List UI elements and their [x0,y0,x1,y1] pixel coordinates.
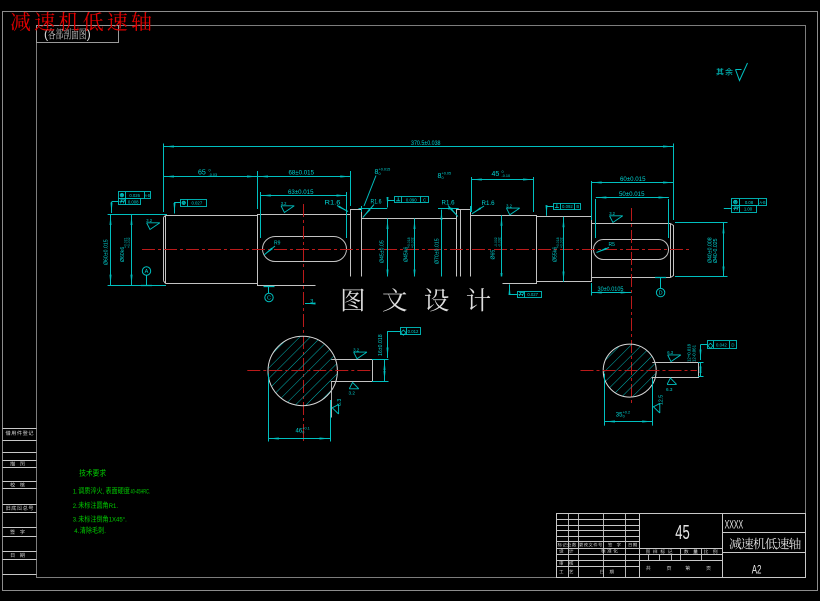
svg-text:C: C [267,296,271,302]
svg-text:370.5±0.038: 370.5±0.038 [411,141,441,147]
svg-text:C: C [423,197,426,202]
svg-text:D: D [659,291,663,297]
svg-text:50±0.015: 50±0.015 [619,191,645,198]
svg-text:0.027: 0.027 [527,292,538,297]
svg-text:A-B: A-B [145,193,150,198]
svg-text:3.2: 3.2 [353,347,359,352]
svg-text:45: 45 [492,171,500,178]
svg-text:0.092: 0.092 [562,204,573,209]
svg-text:16±0.018: 16±0.018 [378,334,384,356]
svg-text:4.: 4. [74,529,79,535]
svg-text:Ø45±0.05: Ø45±0.05 [380,240,386,263]
svg-text:+0.002: +0.002 [559,237,563,248]
svg-text:1X45°.: 1X45°. [109,518,127,524]
svg-text:D: D [731,342,734,347]
svg-text:Ø70±0.015: Ø70±0.015 [434,238,440,264]
svg-text:R1.: R1. [109,504,119,510]
svg-text:Ø60±0.015: Ø60±0.015 [104,239,110,265]
svg-text:68±0.015: 68±0.015 [289,169,315,176]
svg-text:-0.10: -0.10 [502,174,511,178]
svg-text:A: A [145,269,149,275]
svg-text:0: 0 [379,172,381,176]
svg-text:45: 45 [675,522,690,544]
svg-text:40-45HRC.: 40-45HRC. [131,489,151,495]
svg-text:6.3: 6.3 [667,350,673,355]
svg-text:A-B: A-B [760,200,766,205]
svg-text:3.: 3. [73,518,78,524]
svg-text:12.5: 12.5 [659,395,665,405]
svg-text:0: 0 [623,415,625,419]
svg-text:0.008: 0.008 [128,199,139,204]
svg-text:3.2: 3.2 [281,201,287,206]
svg-text:30±0.0105: 30±0.0105 [598,287,625,293]
svg-text:0: 0 [302,431,304,435]
svg-text:0: 0 [442,176,444,180]
svg-text:0.012: 0.012 [408,329,419,334]
svg-text:-0.032: -0.032 [497,237,501,247]
svg-text:3.2: 3.2 [349,391,356,396]
svg-text:12-0.061: 12-0.061 [692,344,697,362]
svg-text:B: B [576,204,579,209]
svg-text:A2: A2 [752,563,762,577]
svg-text:R5: R5 [609,242,616,248]
svg-text:3.2: 3.2 [609,211,615,216]
svg-text:0.027: 0.027 [191,201,202,206]
svg-text:0.026: 0.026 [129,193,140,198]
svg-text:Ø40-0.025: Ø40-0.025 [713,238,719,263]
svg-text:R1.6: R1.6 [325,199,341,206]
svg-text:0.090: 0.090 [406,197,417,202]
svg-text:2.: 2. [73,504,78,510]
svg-text:1.: 1. [73,489,78,495]
svg-text:+0.002: +0.002 [410,237,414,248]
svg-text:0.08: 0.08 [745,200,754,205]
svg-text:-0.03: -0.03 [209,173,218,177]
svg-text:65: 65 [198,170,206,177]
svg-text:6.3: 6.3 [337,399,343,406]
svg-text:R1.6: R1.6 [371,198,382,205]
svg-text:3: 3 [310,299,313,305]
svg-text:6.3: 6.3 [666,387,673,392]
svg-text:63±0.015: 63±0.015 [288,189,314,196]
svg-text:3.2: 3.2 [146,218,152,223]
svg-text:60±0.015: 60±0.015 [620,176,646,183]
svg-text:+0.002: +0.002 [127,237,131,248]
svg-text:XXXX: XXXX [725,520,744,532]
svg-text:1.00: 1.00 [744,206,753,211]
svg-text:R9: R9 [274,241,281,247]
svg-text:3.2: 3.2 [506,203,512,208]
svg-text:0.042: 0.042 [716,342,727,347]
svg-text:Ø65: Ø65 [491,250,497,260]
svg-text:R1.6: R1.6 [442,199,455,206]
